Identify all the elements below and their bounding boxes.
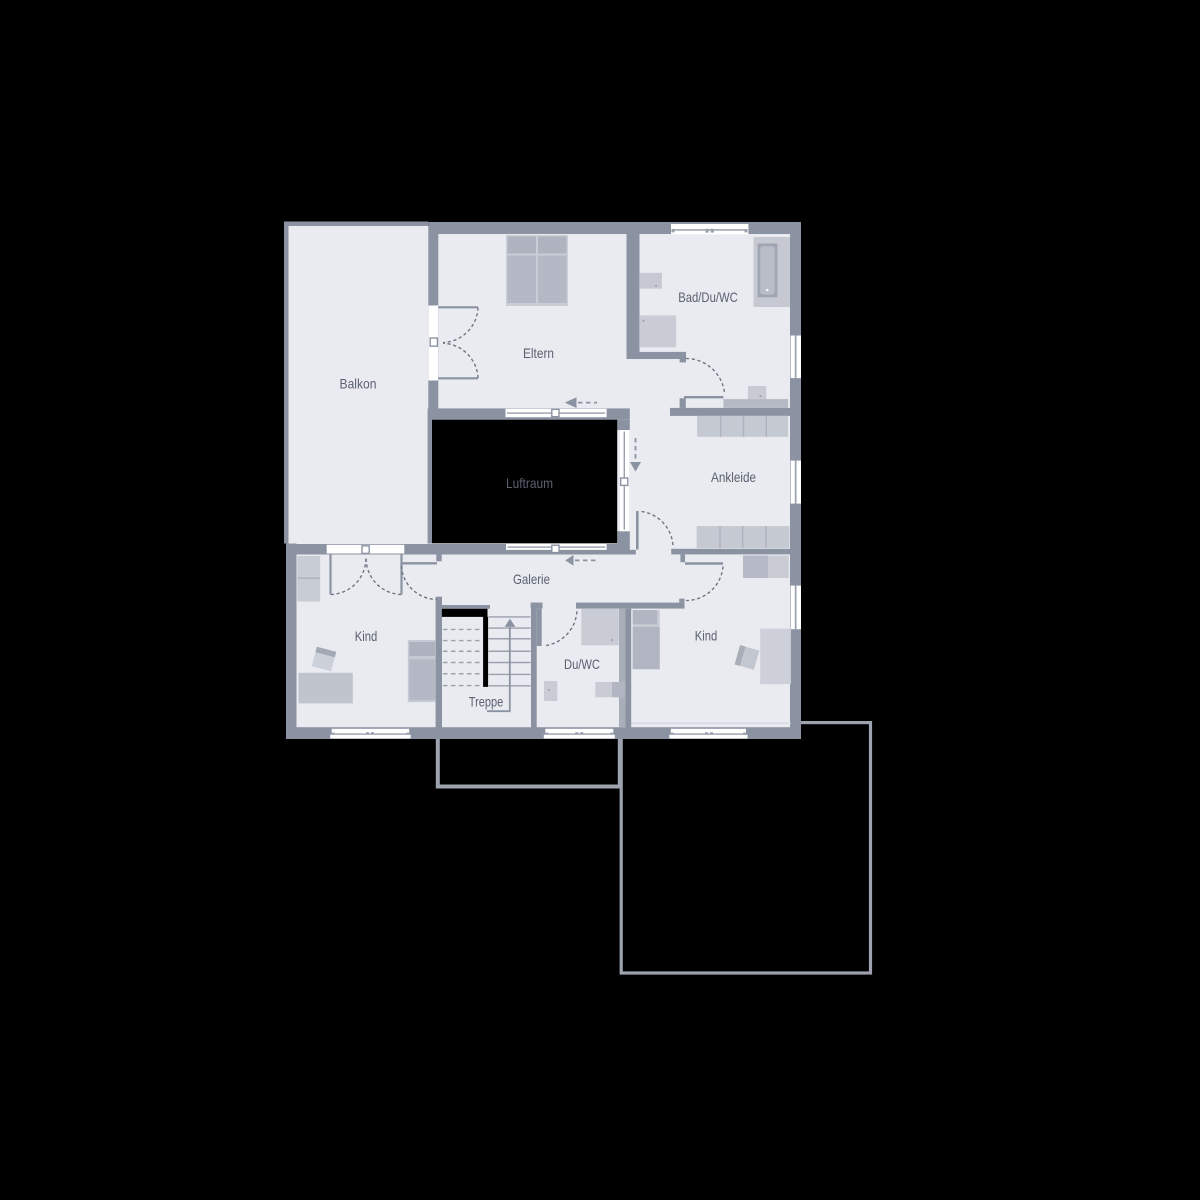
svg-text:Kind: Kind: [355, 628, 378, 644]
svg-text:Galerie: Galerie: [513, 571, 550, 587]
svg-text:Bad/Du/WC: Bad/Du/WC: [678, 289, 738, 305]
svg-text:Kind: Kind: [695, 628, 718, 644]
svg-text:Luftraum: Luftraum: [506, 475, 553, 491]
svg-text:Balkon: Balkon: [340, 376, 377, 392]
svg-text:Eltern: Eltern: [523, 345, 554, 361]
svg-text:Du/WC: Du/WC: [564, 656, 600, 672]
svg-text:Treppe: Treppe: [469, 694, 504, 710]
svg-text:Ankleide: Ankleide: [711, 469, 756, 485]
